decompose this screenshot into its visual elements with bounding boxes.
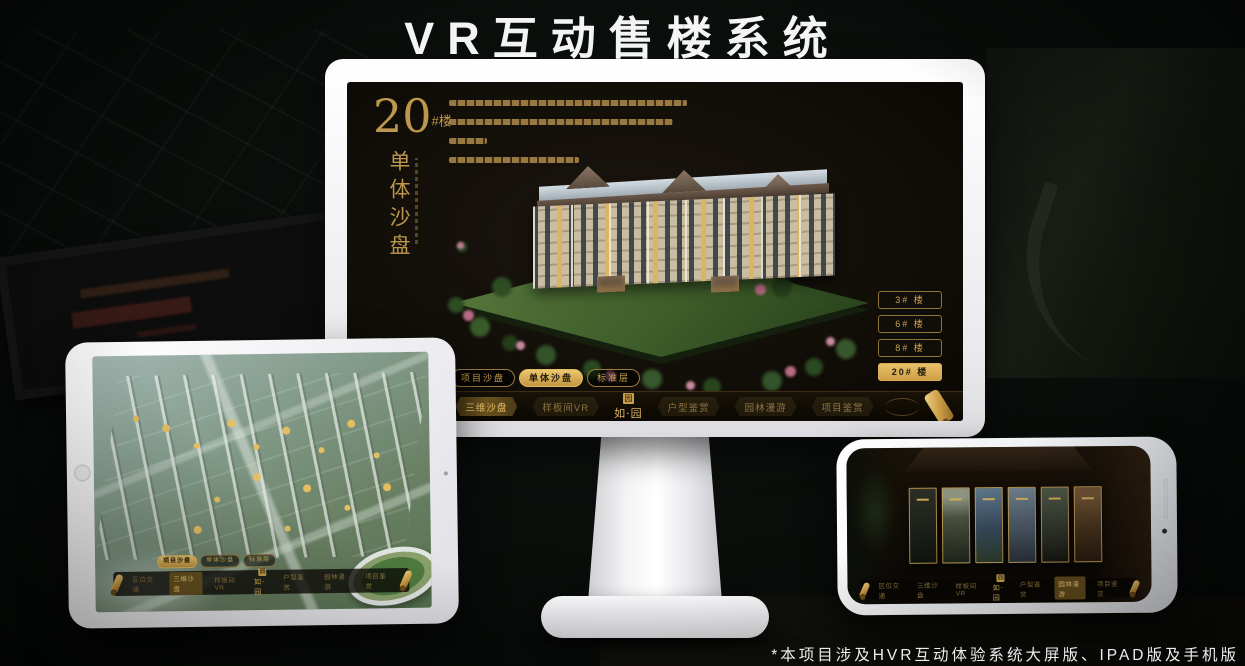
phone-nav-project-view[interactable]: 项目鉴赏 (1093, 576, 1125, 599)
phone-nav-location-traffic[interactable]: 区位交通 (874, 578, 906, 601)
scroll-ribbon-decoration (885, 398, 919, 416)
gallery-panel[interactable] (1074, 486, 1103, 562)
floor-button-3[interactable]: 3# 楼 (878, 291, 942, 309)
building-number: 20 (373, 89, 432, 143)
tablet-nav-garden-tour[interactable]: 园林漫游 (320, 569, 353, 592)
building-headline: 20#楼 (373, 92, 452, 140)
nav-item-garden-tour[interactable]: 园林漫游 (735, 397, 797, 416)
brand-logo-text: 如·园 (993, 583, 1009, 603)
brand-logo[interactable]: 园 如·园 (614, 393, 643, 421)
landscape-flowers (457, 242, 464, 249)
gallery-panel[interactable] (975, 487, 1004, 563)
phone-device: 区位交通 三维沙盘 样板间VR 园 如·园 户型鉴赏 园林漫游 项目鉴赏 (836, 437, 1178, 616)
floor-button-8[interactable]: 8# 楼 (878, 339, 942, 357)
building-entrance (597, 275, 625, 292)
phone-nav-garden-tour[interactable]: 园林漫游 (1054, 576, 1086, 599)
background-aerial-photo (987, 48, 1245, 378)
phone-speaker-slot (1164, 479, 1168, 519)
tablet-tab-standard-floor[interactable]: 标准层 (243, 554, 276, 567)
tab-standard-floor[interactable]: 标准层 (587, 369, 640, 387)
gallery-panel[interactable] (942, 487, 971, 563)
nav-item-project-view[interactable]: 项目鉴赏 (812, 397, 874, 416)
tablet-tab-single-building[interactable]: 单体沙盘 (200, 554, 240, 568)
tablet-nav-floorplan-view[interactable]: 户型鉴赏 (279, 570, 312, 593)
interior-ceiling-beam (904, 446, 1092, 472)
phone-nav-bar: 区位交通 三维沙盘 样板间VR 园 如·园 户型鉴赏 园林漫游 项目鉴赏 (861, 578, 1137, 599)
tablet-sandtable-tabs: 项目沙盘 单体沙盘 标准层 (157, 554, 276, 569)
tablet-brand-logo[interactable]: 园 如·园 (254, 567, 272, 596)
brand-logo-text: 如·园 (254, 576, 271, 596)
phone-camera-icon (1162, 529, 1167, 534)
tablet-tab-project-sandbox[interactable]: 项目沙盘 (157, 555, 197, 569)
tablet-nav-bar: 区位交通 三维沙盘 样板间VR 园 如·园 户型鉴赏 园林漫游 项目鉴赏 (113, 568, 409, 596)
gallery-panel[interactable] (1008, 487, 1037, 563)
floor-button-6[interactable]: 6# 楼 (878, 315, 942, 333)
floor-selector: 3# 楼 6# 楼 8# 楼 20# 楼 (878, 291, 942, 387)
monitor-stand-base (541, 596, 769, 638)
brand-seal-icon: 园 (997, 574, 1005, 582)
description-text-lines (449, 100, 687, 176)
phone-brand-logo[interactable]: 园 如·园 (993, 574, 1009, 603)
brand-seal-icon: 园 (259, 567, 267, 575)
footnote-text: *本项目涉及HVR互动体验系统大屏版、IPAD版及手机版 (771, 643, 1239, 665)
tablet-home-button[interactable] (74, 464, 91, 481)
tablet-nav-model-room-vr[interactable]: 样板间VR (210, 572, 246, 592)
promo-stage: VR互动售楼系统 20#楼 单体沙盘 (0, 0, 1245, 666)
tab-single-building[interactable]: 单体沙盘 (519, 369, 583, 387)
sandtable-tabs: 项目沙盘 单体沙盘 标准层 (451, 369, 640, 387)
nav-item-model-room-vr[interactable]: 样板间VR (532, 397, 599, 416)
building-entrance (711, 275, 739, 292)
phone-nav-model-room-vr[interactable]: 样板间VR (952, 579, 986, 599)
tablet-nav-project-view[interactable]: 项目鉴赏 (361, 569, 394, 592)
nav-item-floorplan-view[interactable]: 户型鉴赏 (658, 397, 720, 416)
nav-item-3d-sandbox[interactable]: 三维沙盘 (455, 397, 517, 416)
building-number-markers[interactable] (133, 416, 139, 422)
floor-button-20[interactable]: 20# 楼 (878, 363, 942, 381)
phone-nav-3d-sandbox[interactable]: 三维沙盘 (913, 578, 945, 601)
vertical-subtitle-decoration (415, 158, 418, 244)
tablet-nav-location-traffic[interactable]: 区位交通 (128, 572, 161, 595)
vr-gallery-panels (909, 486, 1103, 564)
vertical-title: 单体沙盘 (383, 150, 413, 320)
building-facade-windows (533, 193, 835, 288)
page-title: VR互动售楼系统 (0, 2, 1245, 67)
tablet-screen: 项目沙盘 单体沙盘 标准层 区位交通 三维沙盘 样板间VR 园 如·园 户型鉴赏… (92, 352, 432, 613)
tab-project-sandbox[interactable]: 项目沙盘 (451, 369, 515, 387)
gallery-panel[interactable] (909, 488, 938, 564)
brand-logo-text: 如·园 (614, 405, 643, 421)
interior-plant-silhouette (852, 466, 897, 556)
gallery-panel[interactable] (1041, 486, 1070, 562)
monitor-stand-neck (588, 434, 722, 602)
phone-nav-floorplan-view[interactable]: 户型鉴赏 (1016, 577, 1048, 600)
brand-seal-icon: 园 (623, 393, 634, 404)
tablet-device: 项目沙盘 单体沙盘 标准层 区位交通 三维沙盘 样板间VR 园 如·园 户型鉴赏… (65, 337, 459, 628)
tablet-nav-3d-sandbox[interactable]: 三维沙盘 (169, 571, 202, 594)
building-3d-model[interactable] (533, 166, 835, 288)
tablet-camera-icon (444, 471, 448, 475)
phone-screen: 区位交通 三维沙盘 样板间VR 园 如·园 户型鉴赏 园林漫游 项目鉴赏 (846, 446, 1151, 605)
